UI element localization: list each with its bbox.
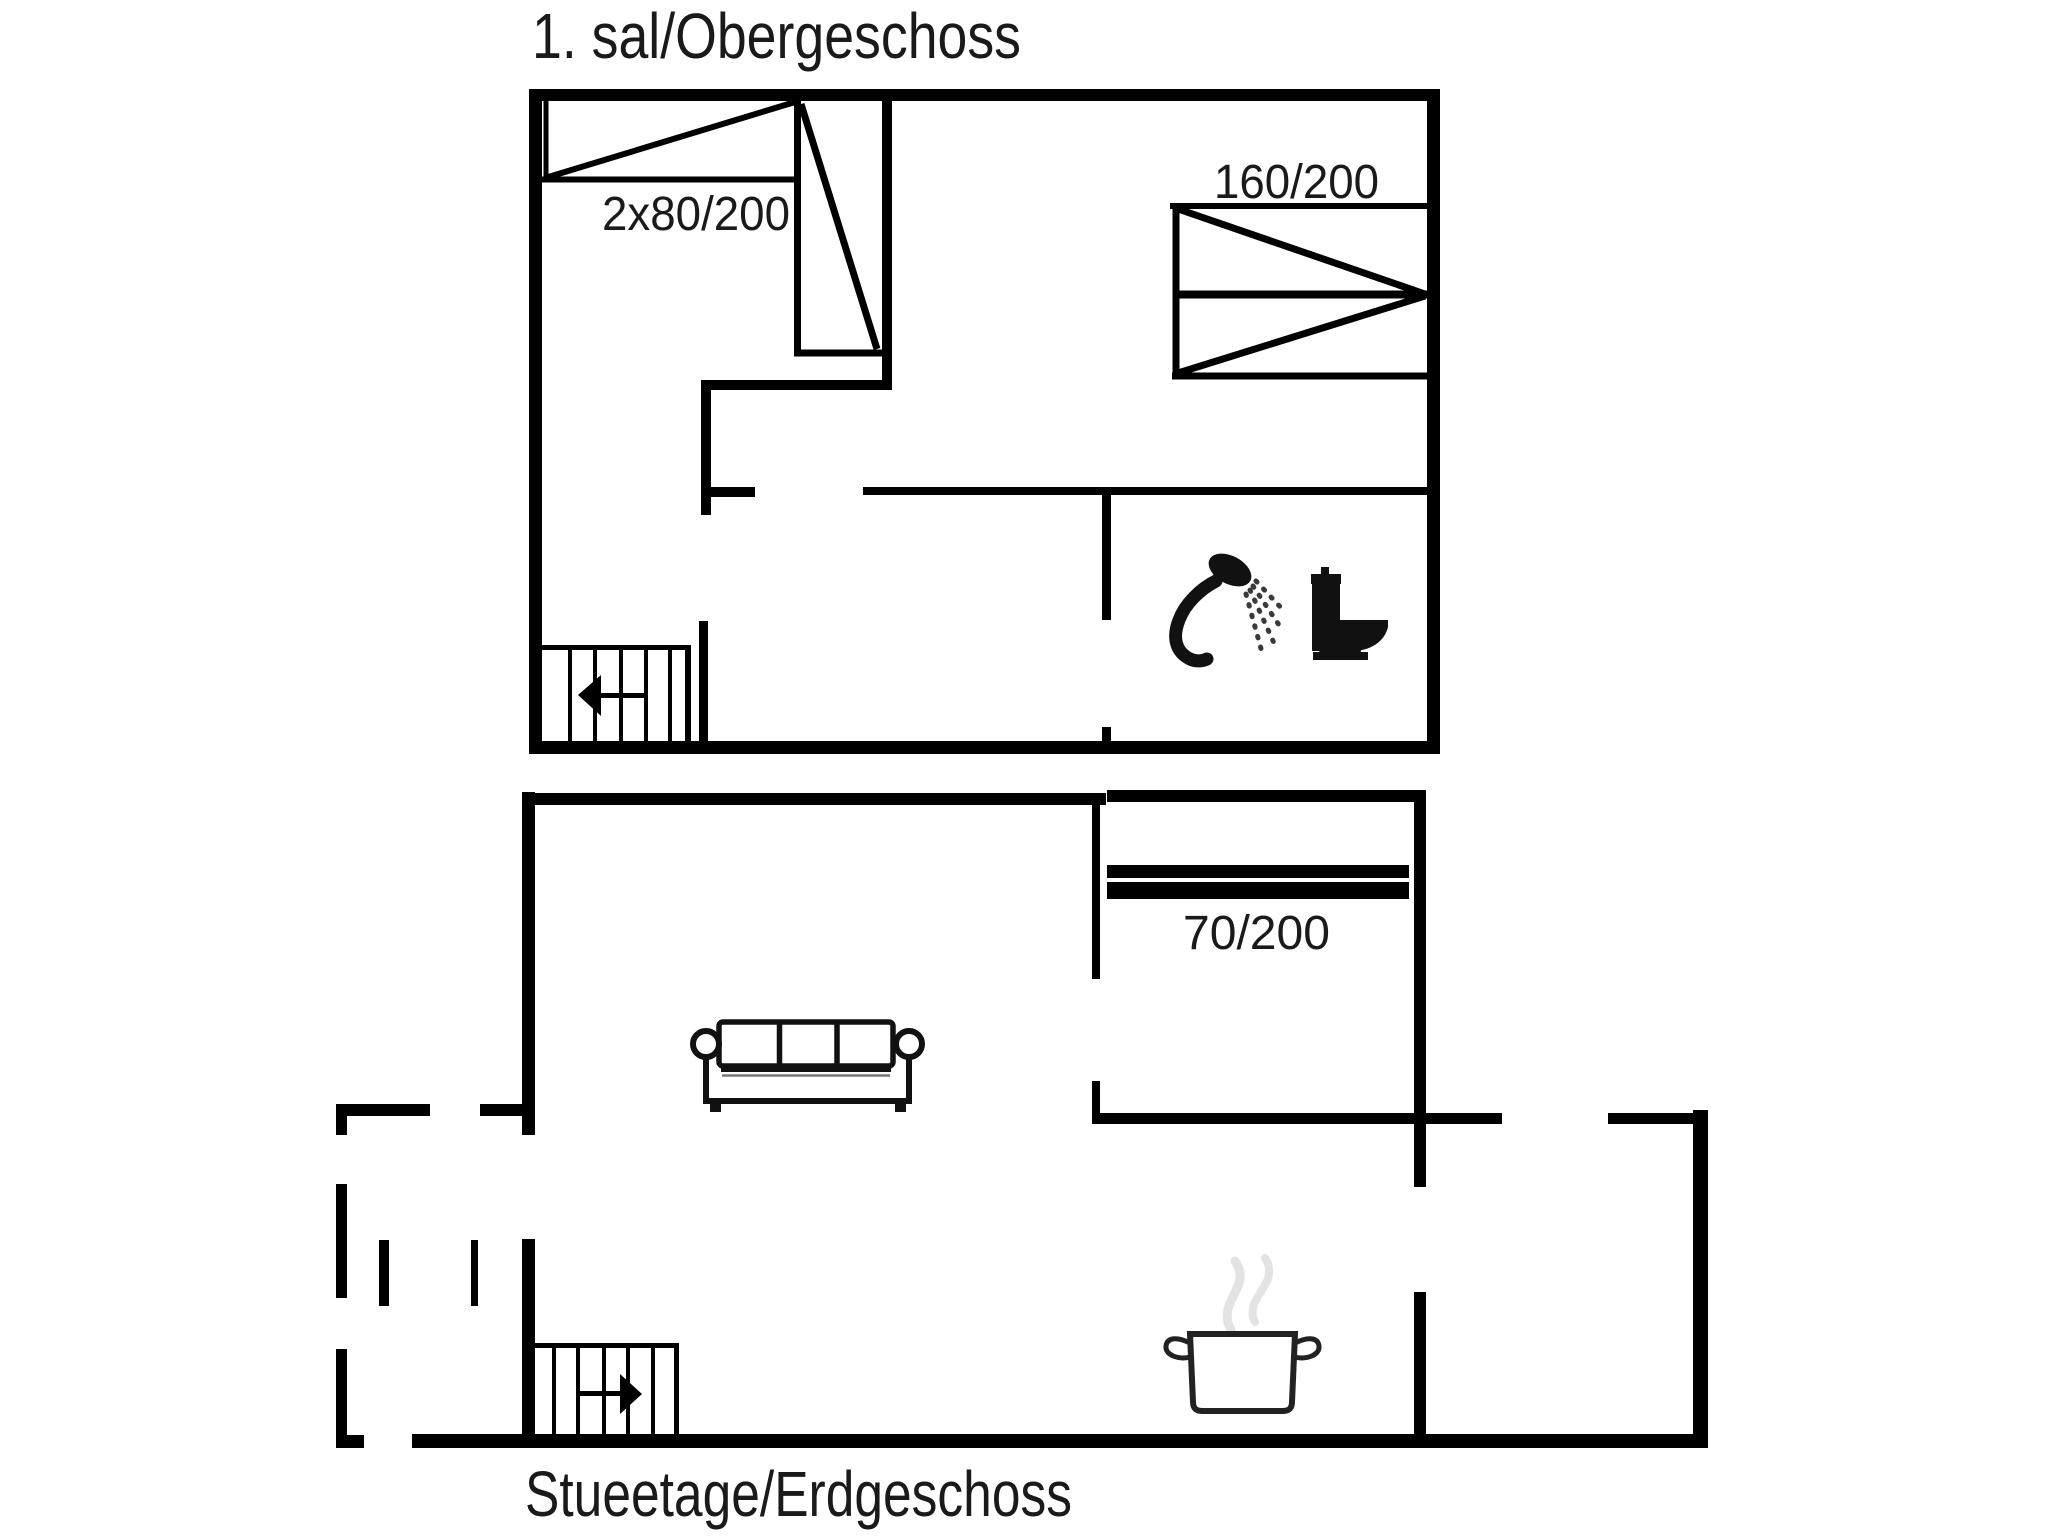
svg-text:160/200: 160/200 [1214,156,1379,209]
svg-text:Stueetage/Erdgeschoss: Stueetage/Erdgeschoss [525,1458,1072,1530]
svg-text:1. sal/Obergeschoss: 1. sal/Obergeschoss [532,0,1021,72]
svg-text:70/200: 70/200 [1183,907,1330,960]
svg-text:2x80/200: 2x80/200 [602,188,790,241]
